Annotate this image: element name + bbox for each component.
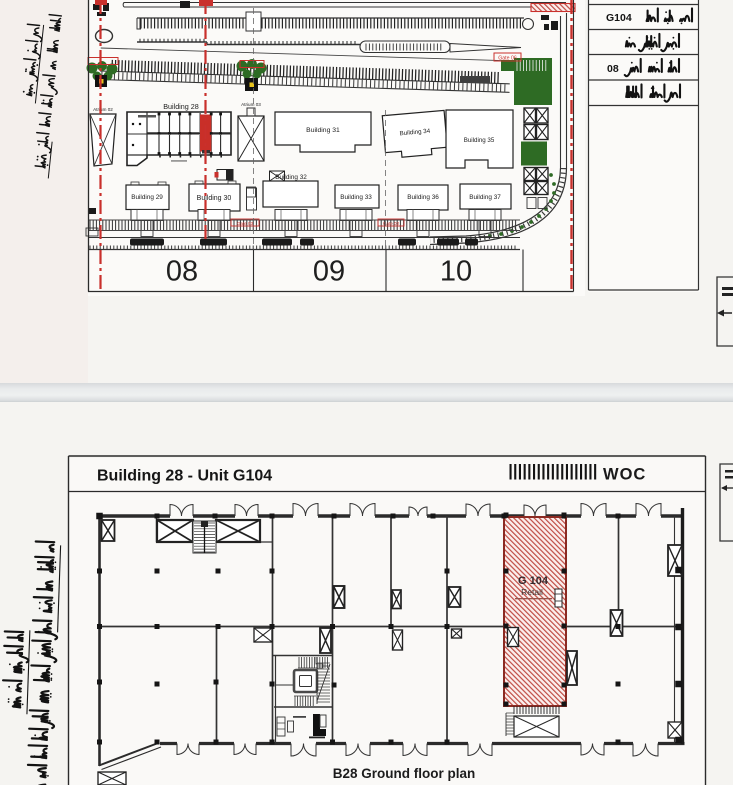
svg-text:G104: G104 <box>606 12 632 24</box>
svg-text:Atrium 03: Atrium 03 <box>241 102 261 107</box>
svg-text:Building 33: Building 33 <box>340 194 372 201</box>
svg-text:Building 30: Building 30 <box>197 195 232 202</box>
svg-text:10: 10 <box>440 256 472 288</box>
svg-text:Building 29: Building 29 <box>131 194 163 201</box>
svg-text:Building 28 - Unit G104: Building 28 - Unit G104 <box>97 468 272 485</box>
svg-text:Building 28: Building 28 <box>163 102 199 111</box>
svg-text:Gate 06: Gate 06 <box>498 55 517 61</box>
svg-text:Building 37: Building 37 <box>469 194 501 201</box>
svg-text:08: 08 <box>166 256 198 288</box>
svg-text:09: 09 <box>313 256 345 288</box>
svg-text:Gate 03: Gate 03 <box>237 221 254 226</box>
svg-text:08: 08 <box>607 63 619 75</box>
svg-text:Building 35: Building 35 <box>464 137 495 144</box>
svg-text:Building 31: Building 31 <box>306 127 340 134</box>
svg-text:Retail: Retail <box>521 587 543 597</box>
svg-text:Building 36: Building 36 <box>407 194 439 201</box>
svg-text:G 104: G 104 <box>518 575 549 587</box>
svg-text:B28 Ground floor plan: B28 Ground floor plan <box>333 766 476 781</box>
svg-text:WOC: WOC <box>603 466 646 484</box>
svg-text:Atrium 02: Atrium 02 <box>93 107 113 112</box>
svg-text:Building 32: Building 32 <box>275 174 307 181</box>
